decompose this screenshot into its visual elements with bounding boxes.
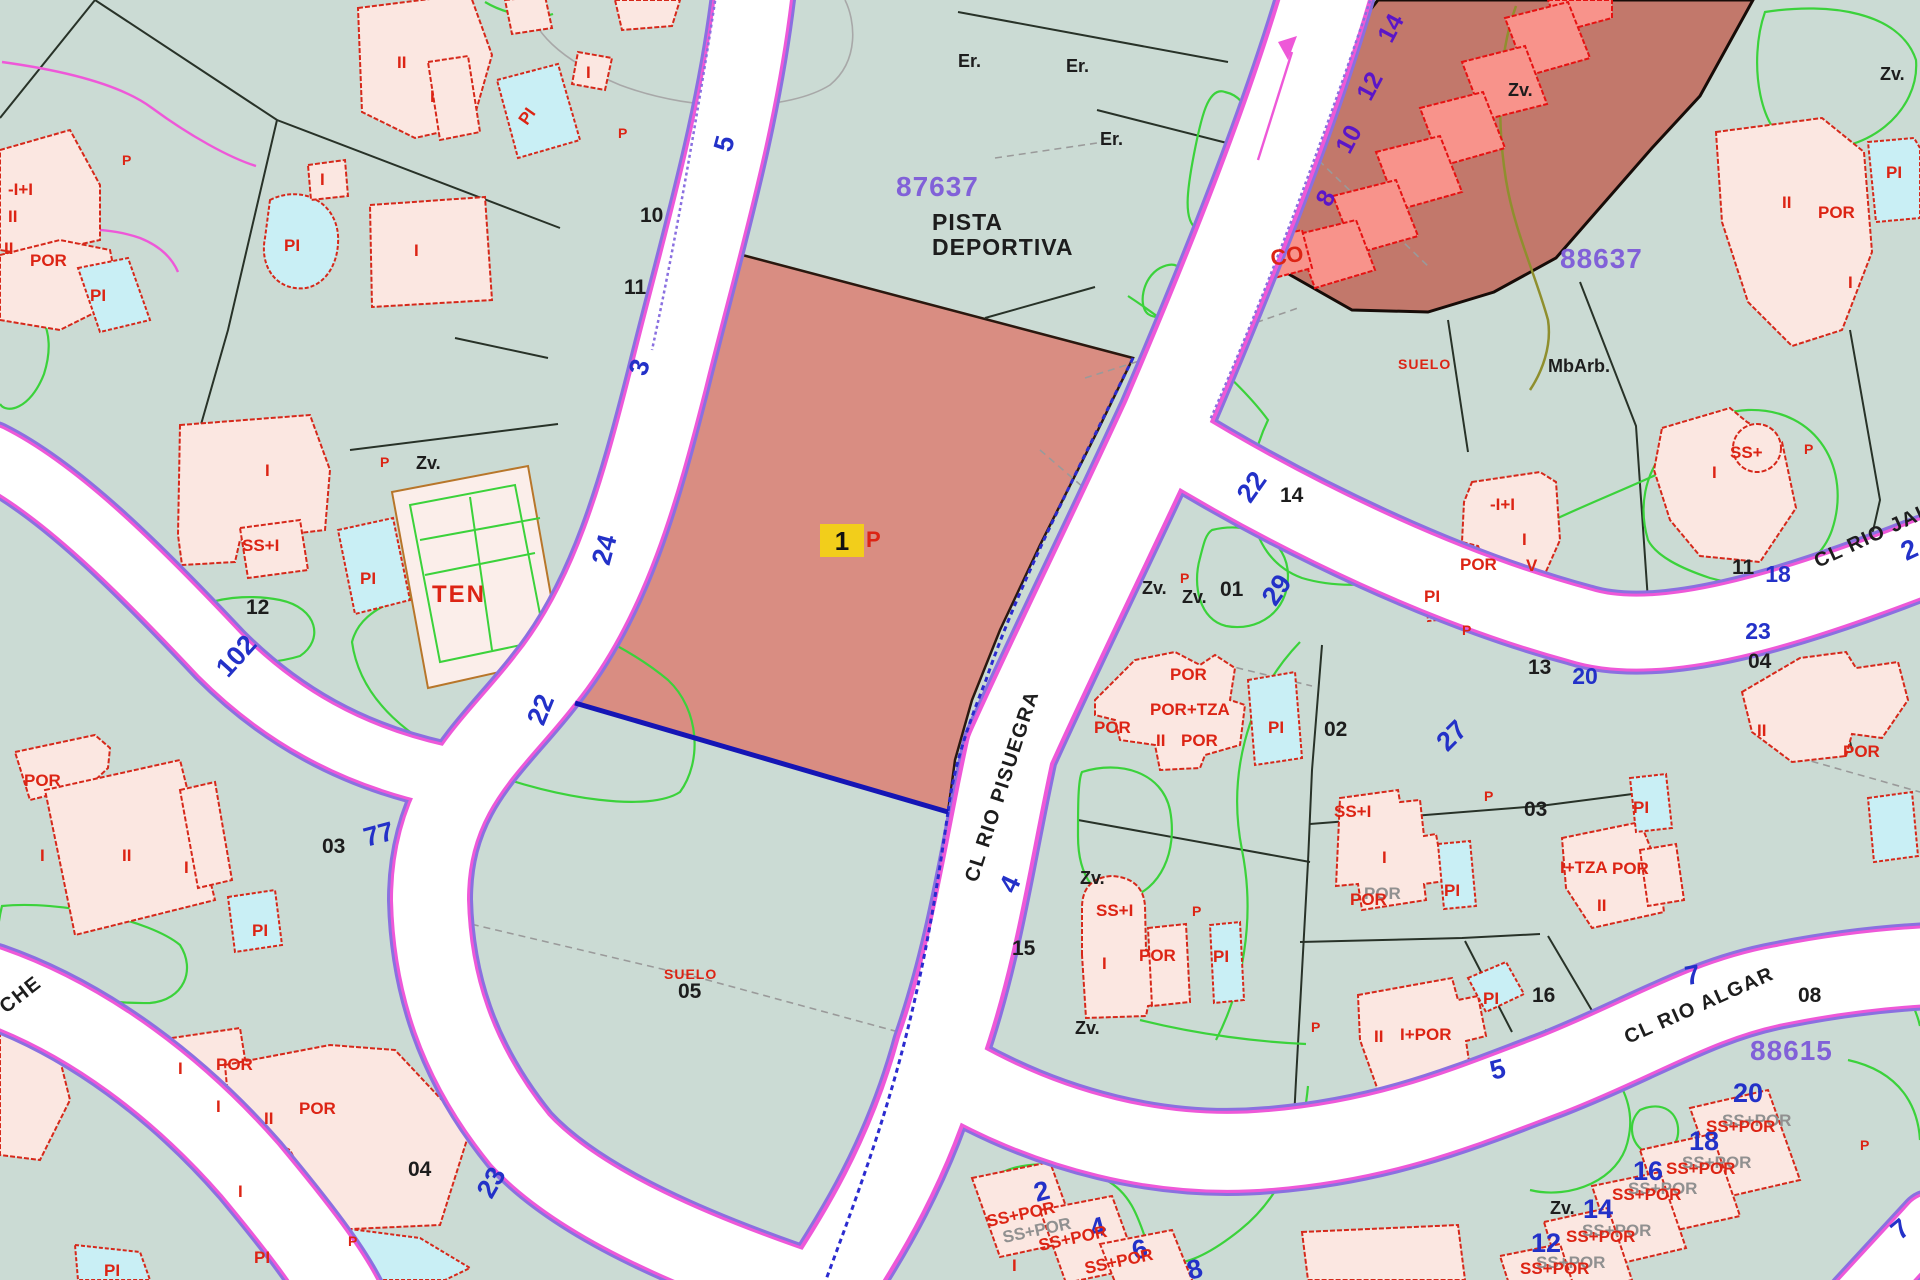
building-use: I (265, 461, 270, 480)
building-use: PI (252, 921, 268, 940)
building-use: PI (1633, 798, 1649, 817)
marker-badge: P (866, 527, 881, 552)
building-use: PI (360, 569, 376, 588)
building-use: P (122, 152, 131, 168)
building-use: I (1712, 463, 1717, 482)
building-use: P (618, 125, 627, 141)
parcel-number: 14 (1280, 484, 1304, 507)
building-use: P (1804, 441, 1813, 457)
house-number: 14 (1583, 1194, 1613, 1224)
parcel-number: 12 (246, 596, 269, 619)
er-label: Er. (1100, 129, 1123, 149)
building-use: POR (1612, 859, 1649, 878)
building-use: I+POR (1400, 1025, 1452, 1044)
building-use: I (184, 858, 189, 877)
building-use: POR (1170, 665, 1207, 684)
building-use: PI (254, 1248, 270, 1267)
building-use: POR (1094, 718, 1131, 737)
building-use: P (1311, 1019, 1320, 1035)
zone-label: Zv. (1550, 1198, 1575, 1218)
building-use: I (178, 1059, 183, 1078)
road-number: 18 (1765, 561, 1791, 587)
parcel-ref-88615: 88615 (1750, 1035, 1833, 1066)
building-use: I (414, 241, 419, 260)
parcel-number: 13 (1528, 656, 1551, 679)
building-use: PI (1444, 881, 1460, 900)
building-use: II (397, 53, 406, 72)
zone-label: Zv. (416, 453, 441, 473)
building-use: II (8, 207, 17, 226)
building-use: POR (1818, 203, 1855, 222)
building-use: P (1180, 570, 1189, 586)
building-use: POR (30, 251, 67, 270)
parcel-number: 03 (1524, 798, 1547, 821)
map-canvas[interactable]: CL RIO PISUEGRACL RIO JALÓNCL RIO ALGARC… (0, 0, 1920, 1280)
pista-deportiva-line2: DEPORTIVA (932, 234, 1073, 260)
building-use: I (238, 1182, 243, 1201)
veg-label: MbArb. (1548, 356, 1610, 376)
building-use: PI (1483, 989, 1499, 1008)
building-use: -I+I (1490, 495, 1515, 514)
road-number: 20 (1572, 663, 1598, 689)
parcel-number: 11 (1732, 556, 1755, 579)
building-use: I (430, 87, 435, 106)
building-use: II (122, 846, 131, 865)
building-use: TEN (432, 581, 486, 608)
building-use: II (1757, 721, 1766, 740)
house-number: 20 (1733, 1078, 1763, 1108)
parcel-number: 02 (1324, 718, 1347, 741)
parcel-number: 10 (640, 204, 663, 227)
building-use: II (4, 239, 13, 258)
suelo-label: SUELO (1398, 356, 1451, 372)
building-use: PI (90, 286, 106, 305)
zone-label: Zv. (1080, 868, 1105, 888)
building-use: PI (1268, 718, 1284, 737)
building-use: PI (1424, 587, 1440, 606)
building-use: V (1526, 556, 1538, 575)
building-use: SS+POR (1666, 1159, 1735, 1178)
building-use: I (1382, 848, 1387, 867)
building-use: I (1848, 273, 1853, 292)
suelo-label: SUELO (664, 966, 717, 982)
er-label: Er. (958, 51, 981, 71)
building-use: P (380, 454, 389, 470)
building-use: POR (1350, 890, 1387, 909)
parcel-number: 04 (1748, 650, 1772, 673)
building-use: I (1102, 954, 1107, 973)
parcel-number: 15 (1012, 937, 1036, 960)
building-use: POR (1843, 742, 1880, 761)
parcel-number: 01 (1220, 578, 1244, 601)
building-use: PI (1213, 947, 1229, 966)
building-use: I (1012, 1256, 1017, 1275)
building-use: PI (104, 1261, 120, 1280)
zone-label: Zv. (1182, 587, 1207, 607)
building-use: SS+POR (1612, 1185, 1681, 1204)
parcel-number: 03 (322, 835, 345, 858)
zone-label: Zv. (1075, 1018, 1100, 1038)
building-use: PI (1886, 163, 1902, 182)
building-use: POR (216, 1055, 253, 1074)
zone-label: Zv. (1508, 80, 1533, 100)
building-use: P (348, 1233, 357, 1249)
marker-number: 1 (835, 526, 849, 556)
building-use: POR (1181, 731, 1218, 750)
building-use: II (1156, 731, 1165, 750)
building-use: SS+ (1730, 443, 1763, 462)
building-use: SS+I (242, 536, 279, 555)
building-use: P (1192, 903, 1201, 919)
building-use: PI (284, 236, 300, 255)
building-use: SS+POR (1566, 1227, 1635, 1246)
building-use: SS+I (1096, 901, 1133, 920)
building-use: SS+POR (1706, 1117, 1775, 1136)
building-use: II (264, 1109, 273, 1128)
building-use: POR (1460, 555, 1497, 574)
cadastral-map-view: CL RIO PISUEGRACL RIO JALÓNCL RIO ALGARC… (0, 0, 1920, 1280)
building-use: -I+I (8, 180, 33, 199)
er-label: Er. (1066, 56, 1089, 76)
building-use: POR (1139, 946, 1176, 965)
road-number: 23 (1745, 618, 1771, 644)
building-use: I (320, 170, 325, 189)
building-use: POR+TZA (1150, 700, 1230, 719)
pista-deportiva-line1: PISTA (932, 209, 1003, 235)
building-use: I (40, 846, 45, 865)
building-use: POR (24, 771, 61, 790)
parcel-ref-87637: 87637 (896, 171, 979, 202)
building-use: II (1374, 1027, 1383, 1046)
zone-label: Zv. (1880, 64, 1905, 84)
parcel-number: 05 (678, 980, 702, 1003)
building-use: II (1597, 896, 1606, 915)
building-use: II (1782, 193, 1791, 212)
building-use: I (586, 63, 591, 82)
building-use: SS+I (1334, 802, 1371, 821)
parcel-number: 08 (1798, 984, 1822, 1007)
parcel-number: 11 (624, 276, 647, 299)
building-use: POR (299, 1099, 336, 1118)
parcel-ref-88637: 88637 (1560, 243, 1643, 274)
zone-label: Zv. (1142, 578, 1167, 598)
building-use: I (216, 1097, 221, 1116)
building-use: SS+POR (1520, 1259, 1589, 1278)
building-use: I+TZA (1560, 858, 1608, 877)
building-use: P (1860, 1137, 1869, 1153)
parcel-number: 04 (408, 1158, 432, 1181)
parcel-number: 16 (1532, 984, 1555, 1007)
building-use: P (1484, 788, 1493, 804)
building-use: I (1522, 530, 1527, 549)
building-use: P (1462, 622, 1471, 638)
